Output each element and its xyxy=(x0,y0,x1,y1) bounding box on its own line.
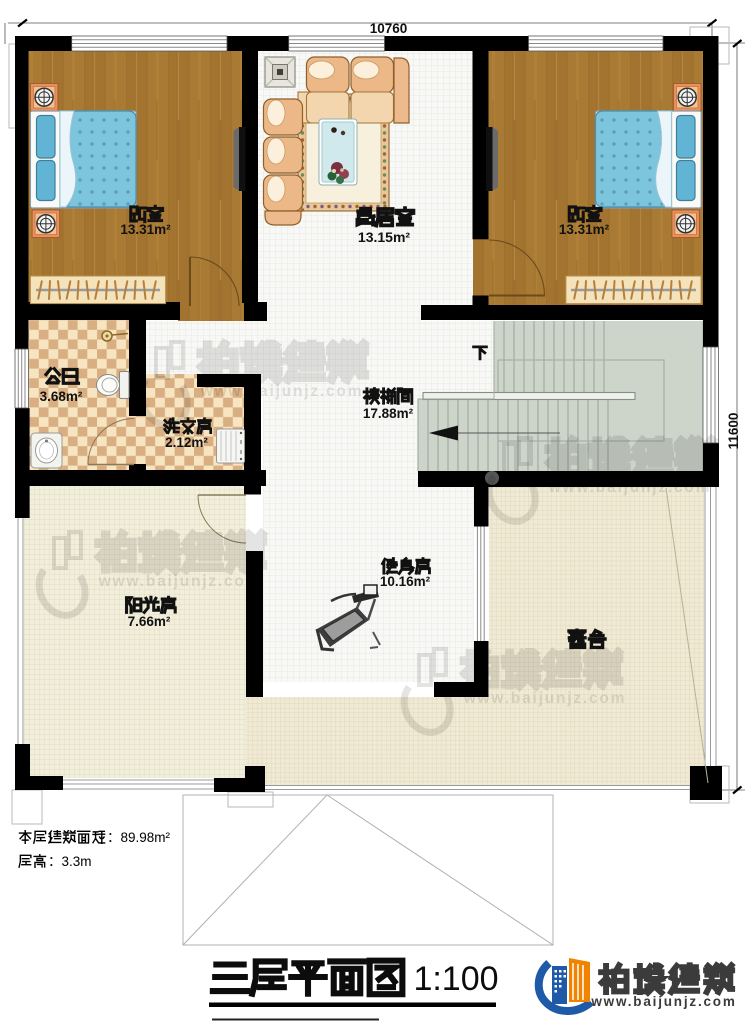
svg-text:：3.3m: ：3.3m xyxy=(48,854,92,869)
svg-text:13.15m²: 13.15m² xyxy=(358,229,410,245)
svg-text:11600: 11600 xyxy=(726,413,741,450)
svg-text:13.31m²: 13.31m² xyxy=(120,222,171,237)
svg-text:10760: 10760 xyxy=(370,21,408,36)
svg-text:www.baijunjz.com: www.baijunjz.com xyxy=(463,690,627,707)
svg-text:www.baijunjz.com: www.baijunjz.com xyxy=(98,573,262,590)
svg-text:7.66m²: 7.66m² xyxy=(128,614,171,629)
svg-text:www.baijunjz.com: www.baijunjz.com xyxy=(548,479,712,496)
svg-text:：89.98m²: ：89.98m² xyxy=(107,830,171,845)
svg-text:1:100: 1:100 xyxy=(413,960,498,998)
svg-text:10.16m²: 10.16m² xyxy=(380,574,431,589)
svg-text:www.baijunjz.com: www.baijunjz.com xyxy=(200,383,364,400)
svg-text:13.31m²: 13.31m² xyxy=(559,222,610,237)
svg-text:3.68m²: 3.68m² xyxy=(40,389,83,404)
svg-text:www.baijunjz.com: www.baijunjz.com xyxy=(590,994,736,1009)
svg-text:17.88m²: 17.88m² xyxy=(363,406,414,421)
svg-text:2.12m²: 2.12m² xyxy=(165,435,208,450)
